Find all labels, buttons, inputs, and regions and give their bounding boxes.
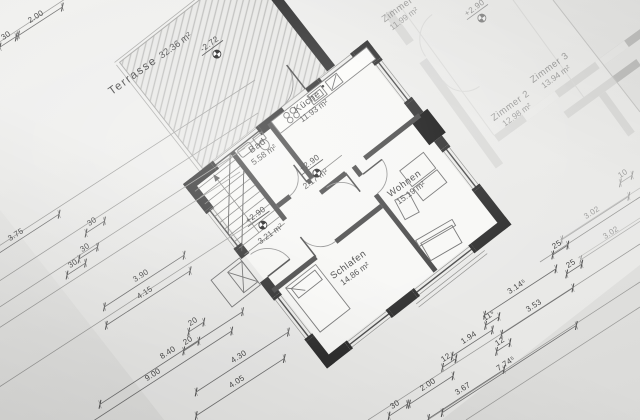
- floor-plan-scene: 302.003.753030303.904.1520204.304.058.40…: [0, 0, 640, 420]
- blueprint-photo: 302.003.753030303.904.1520204.304.058.40…: [0, 0, 640, 420]
